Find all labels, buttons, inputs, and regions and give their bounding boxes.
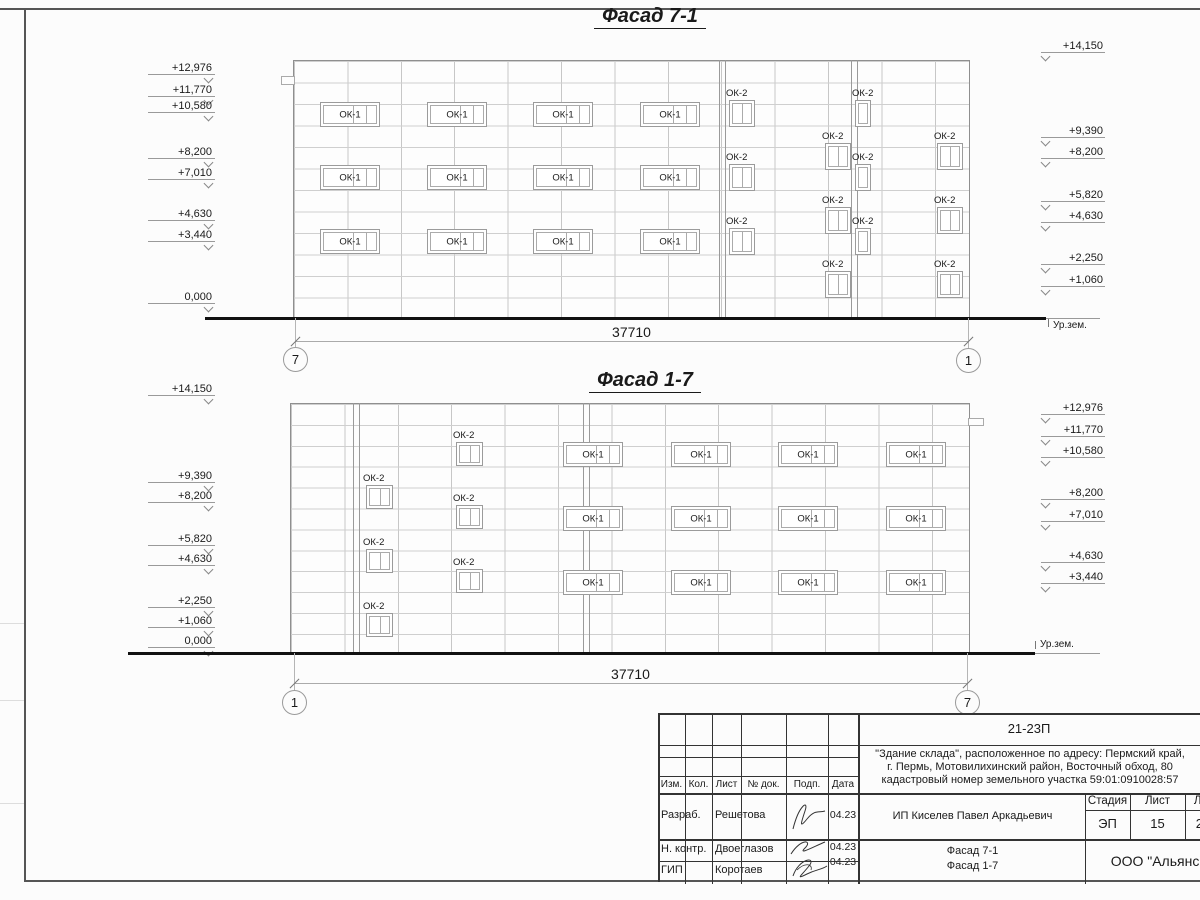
window-label: ОК-2 [726,216,766,227]
window-label: ОК-2 [363,537,404,548]
window-mullion [950,274,951,295]
stage-label: Стадия [1085,795,1130,807]
window-mullion [380,616,381,634]
window-label: ОК-1 [641,109,699,120]
elevation-tick-icon [1041,436,1051,446]
project-description-line3: кадастровый номер земельного участка 59:… [860,774,1200,786]
elevation-tick-icon [1041,52,1051,62]
axis-wall-line [353,403,354,653]
dim-value: 37710 [294,666,967,682]
drawing-sheet: Фасад 7-1ОК-1ОК-1ОК-1ОК-1ОК-1ОК-1ОК-1ОК-… [0,0,1200,900]
window-label: ОК-2 [934,195,974,206]
window-ok1: ОК-1 [671,442,731,467]
axis-wall-line [719,60,720,318]
elevation-mark-right: +7,010 [1041,509,1105,522]
elevation-mark-left: +2,250 [148,595,215,608]
elevation-tick-icon [1041,286,1051,296]
row1-date: 04.23 [828,809,858,821]
ground-label-tick [1035,641,1036,649]
window-mullion [742,167,743,188]
sheets-total: 23 [1185,816,1200,831]
window-ok1: ОК-1 [640,102,700,127]
window-label: ОК-2 [822,259,862,270]
window-label: ОК-2 [726,88,766,99]
elevation-mark-left: +4,630 [148,553,215,566]
elevation-tick-icon [204,565,214,575]
elevation-mark-left: +14,150 [148,383,215,396]
titleblock-line [828,713,829,884]
titleblock-line [712,713,713,884]
col-ndok: № док. [741,779,786,790]
elevation-tick-icon [1041,583,1051,593]
dim-ext-line [968,318,969,348]
window-label: ОК-2 [934,131,974,142]
elevation-tick-icon [1041,137,1051,147]
elevation-mark-left: 0,000 [148,635,215,648]
elevation-mark-right: +3,440 [1041,571,1105,584]
window-label: ОК-1 [428,236,486,247]
window-mullion [380,488,381,506]
window-label: ОК-2 [852,152,882,163]
drawing-title-1: Фасад 7-1 [860,845,1085,857]
elevation-tick-icon [1041,457,1051,467]
elevation-mark-right: +10,580 [1041,445,1105,458]
elevation-mark-right: +1,060 [1041,274,1105,287]
window-label: ОК-1 [321,236,379,247]
ground-label-tick [1048,319,1049,327]
col-izm: Изм. [658,779,685,790]
titleblock-line [685,713,686,884]
elevation-mark-right: +5,820 [1041,189,1105,202]
facade-title: Фасад 1-7 [495,369,795,392]
window-ok1: ОК-1 [671,506,731,531]
ground-line-ext [1046,318,1100,319]
window-label: ОК-2 [852,88,882,99]
window-ok1: ОК-1 [533,229,593,254]
window-ok2 [855,228,871,255]
window-ok1: ОК-1 [778,442,838,467]
elevation-tick-icon [1041,264,1051,274]
elevation-mark-left: 0,000 [148,291,215,304]
window-label: ОК-1 [564,577,622,588]
elevation-tick-icon [1041,562,1051,572]
elevation-mark-left: +1,060 [148,615,215,628]
drawing-title-2: Фасад 1-7 [860,860,1085,872]
window-ok2 [456,569,483,593]
titleblock-line [1130,793,1131,839]
window-label: ОК-1 [428,109,486,120]
elevation-mark-left: +7,010 [148,167,215,180]
window-ok1: ОК-1 [563,506,623,531]
elevation-tick-icon [1041,414,1051,424]
axis-wall-line [359,403,360,653]
ground-line-ext [1035,653,1100,654]
sheets-label: Листов [1185,795,1200,807]
window-ok1: ОК-1 [886,506,946,531]
parapet-step [968,418,984,426]
window-label: ОК-1 [672,577,730,588]
elevation-tick-icon [204,395,214,405]
titleblock-line [1185,793,1186,839]
window-ok2 [729,100,755,127]
signature-reshetova [789,795,827,835]
elevation-tick-icon [1041,499,1051,509]
titleblock-line [786,713,787,884]
window-mullion [380,552,381,570]
dim-line [295,341,968,342]
window-ok1: ОК-1 [533,102,593,127]
elevation-mark-left: +8,200 [148,146,215,159]
window-label: ОК-1 [428,172,486,183]
elevation-tick-icon [204,241,214,251]
axis-bubble: 7 [283,347,308,372]
window-ok1: ОК-1 [778,506,838,531]
window-mullion [950,146,951,167]
window-label: ОК-1 [321,109,379,120]
client-name: ИП Киселев Павел Аркадьевич [860,810,1085,822]
dim-line [294,683,967,684]
window-inner-frame [858,167,868,188]
window-ok2 [366,549,393,573]
facade-title-text: Фасад 7-1 [594,5,706,29]
elevation-tick-icon [204,74,214,84]
window-label: ОК-2 [852,216,882,227]
facade-title-text: Фасад 1-7 [589,369,701,393]
col-data: Дата [828,779,858,790]
titleblock-line [1085,793,1086,884]
window-label: ОК-1 [641,172,699,183]
window-ok1: ОК-1 [320,165,380,190]
window-mullion [838,274,839,295]
window-label: ОК-2 [363,473,404,484]
elevation-tick-icon [204,502,214,512]
window-label: ОК-2 [822,195,862,206]
frame-bottom [24,880,1200,882]
elevation-mark-right: +14,150 [1041,40,1105,53]
elevation-mark-right: +2,250 [1041,252,1105,265]
elevation-tick-icon [1041,201,1051,211]
window-mullion [470,508,471,526]
window-label: ОК-1 [564,513,622,524]
titleblock-line [658,713,1200,715]
elevation-mark-right: +8,200 [1041,146,1105,159]
window-mullion [838,146,839,167]
window-mullion [742,231,743,252]
window-ok2 [366,485,393,509]
window-ok1: ОК-1 [320,102,380,127]
titleblock-line [658,713,660,882]
window-mullion [470,445,471,463]
titleblock-line [1085,810,1200,811]
axis-bubble: 1 [956,348,981,373]
window-ok2 [825,207,851,234]
margin-line [0,623,24,624]
col-podp: Подп. [786,779,828,790]
elevation-mark-right: +4,630 [1041,550,1105,563]
window-label: ОК-2 [453,430,494,441]
margin-line [0,803,24,804]
window-mullion [470,572,471,590]
col-list: Лист [712,779,741,790]
window-mullion [950,210,951,231]
window-ok1: ОК-1 [320,229,380,254]
frame-left [24,8,26,882]
elevation-mark-left: +12,976 [148,62,215,75]
ground-line [205,317,1046,320]
window-ok2 [825,143,851,170]
elevation-mark-left: +10,580 [148,100,215,113]
window-inner-frame [858,103,868,124]
window-ok2 [729,164,755,191]
row3-role: ГИП [661,864,683,876]
window-mullion [742,103,743,124]
window-ok2 [855,100,871,127]
window-inner-frame [858,231,868,252]
elevation-mark-left: +5,820 [148,533,215,546]
margin-line [0,700,24,701]
window-ok2 [825,271,851,298]
elevation-mark-right: +11,770 [1041,424,1105,437]
window-label: ОК-2 [363,601,404,612]
window-ok2 [937,207,963,234]
elevation-mark-right: +4,630 [1041,210,1105,223]
elevation-mark-left: +3,440 [148,229,215,242]
titleblock-line [658,839,1200,841]
dim-value: 37710 [295,324,968,340]
elevation-mark-right: +9,390 [1041,125,1105,138]
window-ok2 [456,442,483,466]
window-label: ОК-2 [453,557,494,568]
window-label: ОК-2 [453,493,494,504]
window-label: ОК-1 [641,236,699,247]
window-ok1: ОК-1 [886,442,946,467]
window-label: ОК-1 [672,449,730,460]
window-label: ОК-1 [534,172,592,183]
titleblock-line [658,793,1200,795]
window-ok1: ОК-1 [563,570,623,595]
window-ok1: ОК-1 [427,102,487,127]
window-ok2 [729,228,755,255]
row2-role: Н. контр. [661,843,706,855]
project-description-line2: г. Пермь, Мотовилихинский район, Восточн… [860,761,1200,773]
window-ok2 [937,271,963,298]
project-description-line1: "Здание склада", расположенное по адресу… [860,748,1200,760]
elevation-tick-icon [1041,222,1051,232]
window-ok2 [855,164,871,191]
window-ok2 [937,143,963,170]
ground-label: Ур.зем. [1053,320,1087,331]
window-mullion [838,210,839,231]
window-ok1: ОК-1 [533,165,593,190]
elevation-mark-left: +9,390 [148,470,215,483]
elevation-mark-left: +8,200 [148,490,215,503]
elevation-tick-icon [204,158,214,168]
window-ok1: ОК-1 [886,570,946,595]
window-label: ОК-1 [887,449,945,460]
axis-bubble: 1 [282,690,307,715]
elevation-tick-icon [204,303,214,313]
window-label: ОК-1 [887,513,945,524]
window-label: ОК-1 [887,577,945,588]
row3-date: 04.23 [828,856,858,868]
titleblock-line [858,745,1200,746]
sheet-number: 15 [1130,816,1185,831]
titleblock-line [858,713,860,884]
window-ok2 [456,505,483,529]
window-ok2 [366,613,393,637]
window-label: ОК-1 [779,577,837,588]
window-label: ОК-1 [534,236,592,247]
window-ok1: ОК-1 [671,570,731,595]
signature-kontr-gip [787,836,829,882]
row1-role: Разраб. [661,809,701,821]
window-label: ОК-1 [672,513,730,524]
parapet-step [281,76,295,85]
window-ok1: ОК-1 [427,165,487,190]
window-ok1: ОК-1 [563,442,623,467]
window-label: ОК-1 [779,449,837,460]
window-ok1: ОК-1 [778,570,838,595]
project-code: 21-23П [858,721,1200,736]
axis-bubble: 7 [955,690,980,715]
window-label: ОК-2 [934,259,974,270]
facade-title: Фасад 7-1 [500,5,800,28]
elevation-tick-icon [204,220,214,230]
col-kol: Кол. [685,779,712,790]
elevation-mark-left: +4,630 [148,208,215,221]
row2-date: 04.23 [828,841,858,853]
ground-label: Ур.зем. [1040,639,1074,650]
window-label: ОК-1 [564,449,622,460]
elevation-tick-icon [204,112,214,122]
row3-name: Коротаев [715,864,763,876]
elevation-mark-right: +8,200 [1041,487,1105,500]
window-ok1: ОК-1 [640,165,700,190]
elevation-tick-icon [1041,158,1051,168]
window-label: ОК-2 [726,152,766,163]
window-label: ОК-1 [534,109,592,120]
elevation-mark-right: +12,976 [1041,402,1105,415]
company-name: ООО "Альянс" [1085,853,1200,869]
window-label: ОК-1 [779,513,837,524]
elevation-tick-icon [1041,521,1051,531]
window-ok1: ОК-1 [427,229,487,254]
titleblock-line [741,713,742,884]
stage-value: ЭП [1085,816,1130,831]
ground-line [128,652,1035,655]
elevation-tick-icon [204,179,214,189]
sheet-label: Лист [1130,795,1185,807]
elevation-mark-left: +11,770 [148,84,215,97]
row2-name: Двоеглазов [715,843,773,855]
window-ok1: ОК-1 [640,229,700,254]
window-label: ОК-1 [321,172,379,183]
window-label: ОК-2 [822,131,862,142]
